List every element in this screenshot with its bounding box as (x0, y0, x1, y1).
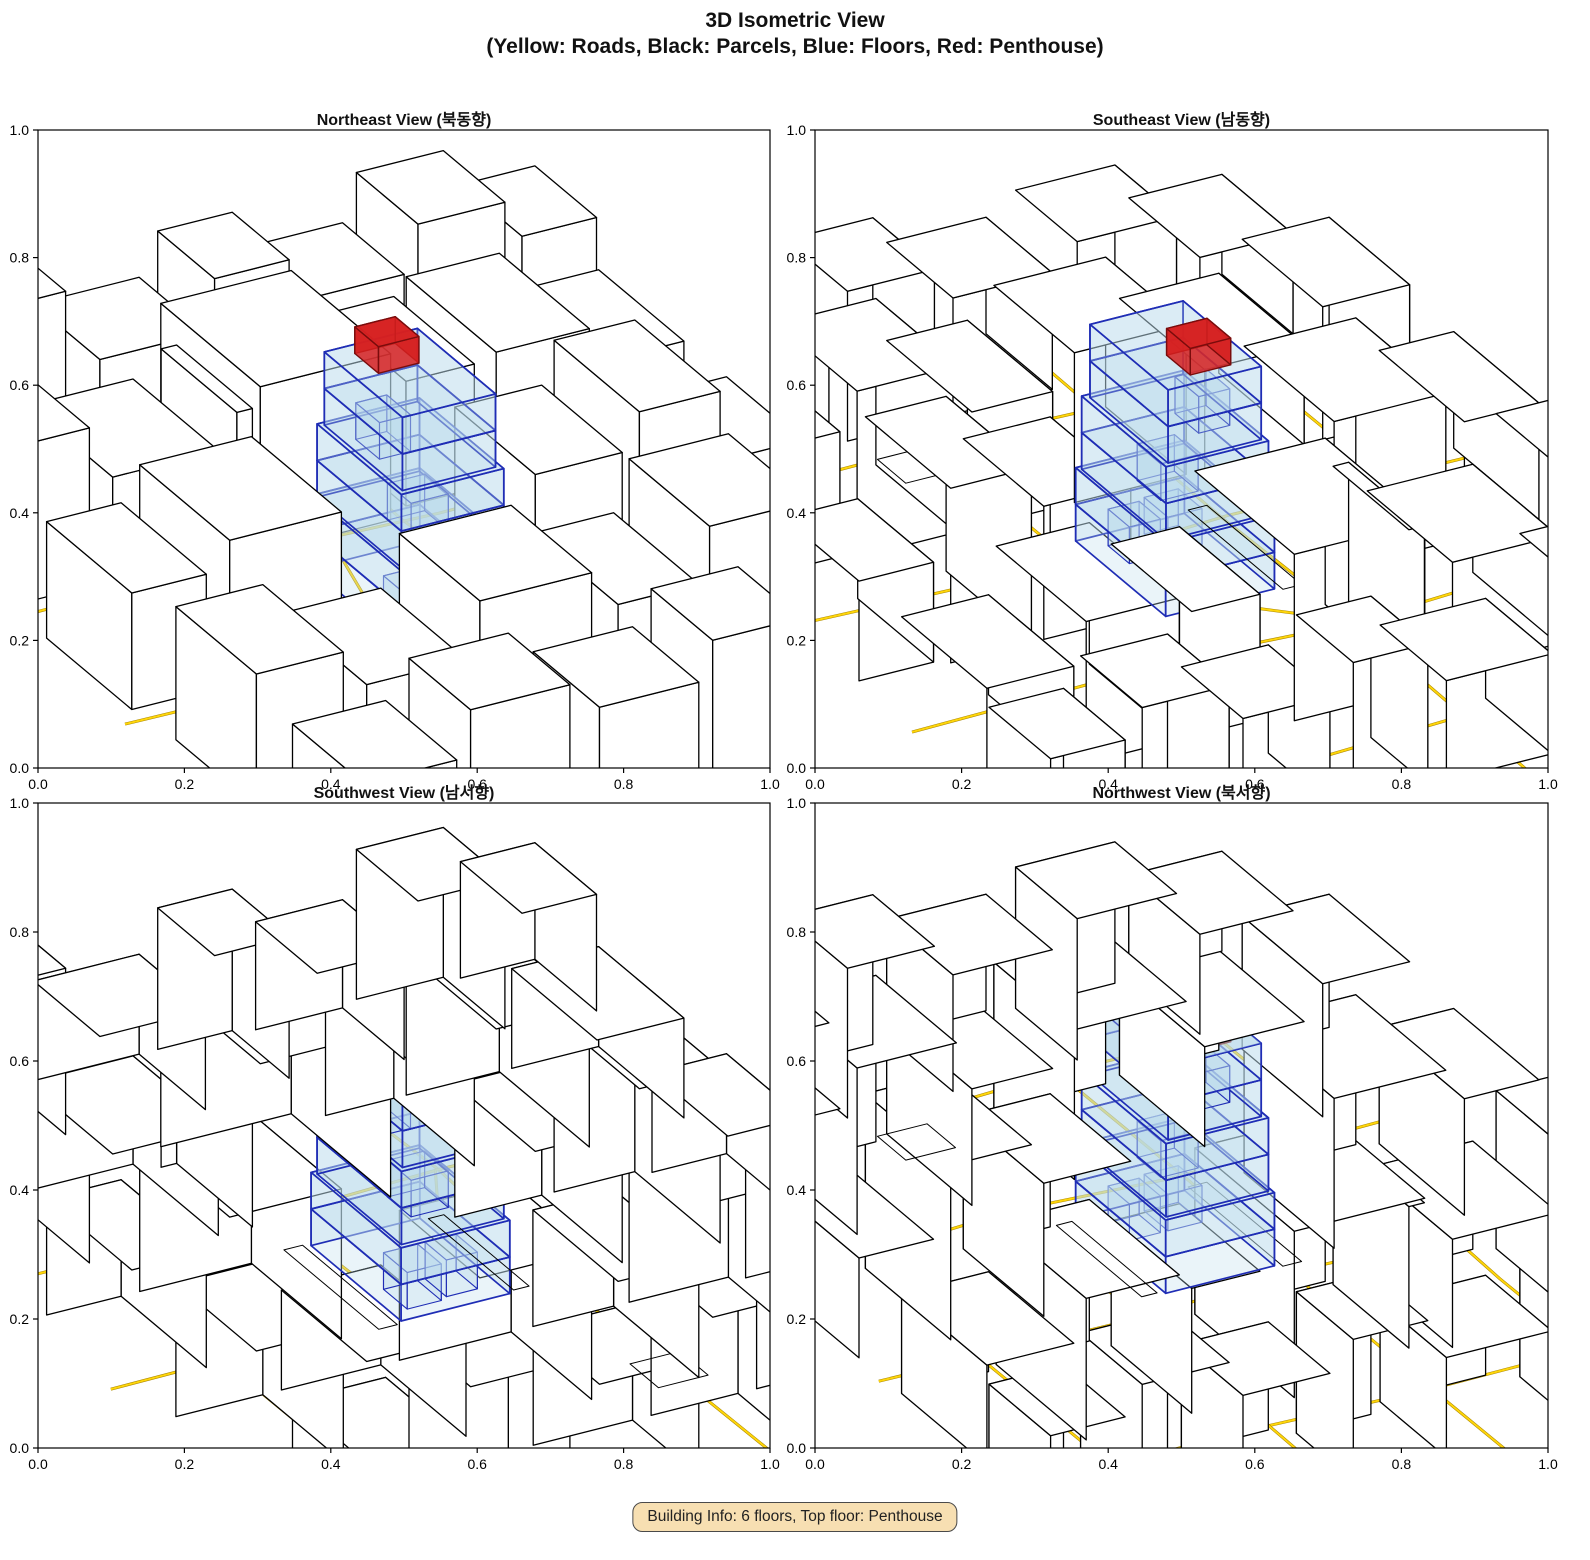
svg-text:0.2: 0.2 (10, 632, 30, 648)
svg-text:0.0: 0.0 (805, 1456, 825, 1472)
view-canvas-northwest: 0.00.20.40.60.81.00.00.20.40.60.81.0 (777, 773, 1572, 1479)
svg-text:0.6: 0.6 (787, 1053, 807, 1069)
view-canvas-southeast: 0.00.20.40.60.81.00.00.20.40.60.81.0 (777, 100, 1572, 806)
svg-text:0.8: 0.8 (614, 1456, 634, 1472)
svg-text:0.6: 0.6 (467, 1456, 487, 1472)
svg-text:0.4: 0.4 (787, 505, 807, 521)
svg-text:0.8: 0.8 (10, 250, 30, 266)
svg-text:0.4: 0.4 (787, 1182, 807, 1198)
svg-text:0.6: 0.6 (1245, 1456, 1265, 1472)
svg-text:0.8: 0.8 (10, 924, 30, 940)
svg-text:1.0: 1.0 (10, 122, 30, 138)
svg-text:0.4: 0.4 (321, 1456, 341, 1472)
svg-text:0.2: 0.2 (787, 1311, 807, 1327)
building-info-badge: Building Info: 6 floors, Top floor: Pent… (632, 1502, 957, 1532)
view-canvas-southwest: 0.00.20.40.60.81.00.00.20.40.60.81.0 (0, 773, 795, 1479)
view-canvas-northeast: 0.00.20.40.60.81.00.00.20.40.60.81.0 (0, 100, 795, 806)
svg-text:0.8: 0.8 (1392, 1456, 1412, 1472)
svg-text:0.2: 0.2 (787, 632, 807, 648)
svg-text:0.4: 0.4 (10, 505, 30, 521)
figure-title-line2: (Yellow: Roads, Black: Parcels, Blue: Fl… (0, 34, 1590, 60)
svg-text:0.8: 0.8 (787, 250, 807, 266)
svg-text:0.6: 0.6 (10, 377, 30, 393)
svg-text:0.0: 0.0 (787, 1440, 807, 1456)
figure-title: 3D Isometric View (Yellow: Roads, Black:… (0, 8, 1590, 60)
svg-text:0.2: 0.2 (175, 1456, 195, 1472)
svg-text:1.0: 1.0 (1538, 1456, 1558, 1472)
svg-text:0.4: 0.4 (10, 1182, 30, 1198)
svg-text:1.0: 1.0 (10, 795, 30, 811)
svg-text:0.4: 0.4 (1098, 1456, 1118, 1472)
figure-title-line1: 3D Isometric View (0, 8, 1590, 34)
svg-text:0.0: 0.0 (28, 1456, 48, 1472)
svg-text:1.0: 1.0 (787, 795, 807, 811)
svg-text:0.2: 0.2 (10, 1311, 30, 1327)
svg-text:0.0: 0.0 (10, 1440, 30, 1456)
svg-text:1.0: 1.0 (787, 122, 807, 138)
svg-text:0.2: 0.2 (952, 1456, 972, 1472)
svg-text:0.8: 0.8 (787, 924, 807, 940)
svg-text:0.6: 0.6 (10, 1053, 30, 1069)
svg-text:0.6: 0.6 (787, 377, 807, 393)
